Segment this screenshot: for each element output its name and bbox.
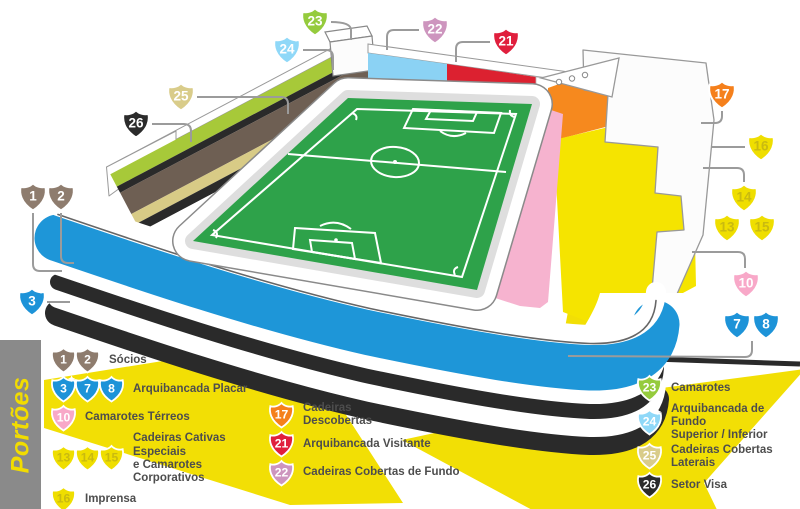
shield-icon: 8	[98, 375, 125, 404]
legend-label: Sócios	[109, 354, 147, 367]
gate-badge-2-legend[interactable]: 2	[74, 346, 101, 375]
legend-label: Arquibancada Visitante	[303, 438, 431, 451]
legend-label: Cadeiras Cobertas de Fundo	[303, 466, 460, 479]
legend-row: 22Cadeiras Cobertas de Fundo	[268, 459, 468, 488]
shield-icon: 3	[50, 375, 77, 404]
shield-icon: 16	[50, 485, 77, 509]
svg-text:2: 2	[84, 353, 91, 367]
legend-label: Cadeiras Descobertas	[303, 402, 372, 428]
legend-column-1: 12Sócios378Arquibancada Placar10Camarote…	[50, 346, 275, 509]
legend-row-badges: 131415	[50, 444, 125, 473]
gates-title: Portões	[6, 376, 35, 473]
legend-column-2: 17Cadeiras Descobertas21Arquibancada Vis…	[268, 401, 468, 487]
svg-text:24: 24	[279, 42, 295, 57]
shield-icon: 22	[268, 459, 295, 488]
gate-badge-13-legend[interactable]: 13	[50, 444, 77, 473]
shield-icon: 17	[707, 79, 737, 111]
shield-icon: 24	[272, 34, 302, 66]
shield-icon: 22	[420, 14, 450, 46]
legend-row-badges: 23	[636, 374, 663, 403]
svg-text:23: 23	[307, 14, 323, 29]
svg-text:15: 15	[754, 220, 770, 235]
gate-badge-16[interactable]: 16	[746, 131, 776, 163]
svg-text:2: 2	[57, 189, 65, 204]
legend-row-badges: 24	[636, 408, 663, 437]
legend-row: 10Camarotes Térreos	[50, 404, 275, 433]
gate-badge-21[interactable]: 21	[491, 26, 521, 58]
legend-label: Camarotes Térreos	[85, 411, 190, 424]
svg-text:26: 26	[643, 478, 657, 492]
gate-badge-1-legend[interactable]: 1	[50, 346, 77, 375]
shield-icon: 15	[747, 212, 777, 244]
gate-badge-26[interactable]: 26	[121, 108, 151, 140]
shield-icon: 15	[98, 444, 125, 473]
svg-text:10: 10	[738, 276, 753, 291]
svg-text:1: 1	[29, 189, 37, 204]
shield-icon: 1	[18, 181, 48, 213]
stadium-gates-map: 12378101314151617212223242526 Portões 12…	[0, 0, 800, 509]
legend-row: 23Camarotes	[636, 374, 800, 403]
svg-text:7: 7	[733, 317, 741, 332]
gate-badge-15-legend[interactable]: 15	[98, 444, 125, 473]
svg-text:13: 13	[57, 451, 71, 465]
gate-badge-1[interactable]: 1	[18, 181, 48, 213]
legend-row-badges: 22	[268, 459, 295, 488]
gate-badge-24-legend[interactable]: 24	[636, 408, 663, 437]
shield-icon: 7	[722, 309, 752, 341]
svg-text:25: 25	[173, 89, 189, 104]
shield-icon: 21	[268, 430, 295, 459]
svg-text:3: 3	[28, 294, 36, 309]
gate-badge-8-legend[interactable]: 8	[98, 375, 125, 404]
shield-icon: 14	[729, 182, 759, 214]
svg-text:22: 22	[275, 465, 289, 479]
svg-text:21: 21	[275, 436, 289, 450]
legend-row-badges: 16	[50, 485, 77, 509]
svg-text:3: 3	[60, 381, 67, 395]
shield-icon: 21	[491, 26, 521, 58]
shield-icon: 2	[74, 346, 101, 375]
shield-icon: 24	[636, 408, 663, 437]
legend-label: Arquibancada de Fundo Superior / Inferio…	[671, 403, 800, 443]
svg-text:8: 8	[762, 317, 770, 332]
shield-icon: 13	[50, 444, 77, 473]
legend-row-badges: 17	[268, 401, 295, 430]
legend-row: 12Sócios	[50, 346, 275, 375]
svg-text:13: 13	[719, 220, 735, 235]
legend-label: Cadeiras Cobertas Laterais	[671, 444, 773, 470]
svg-text:23: 23	[643, 381, 657, 395]
shield-icon: 14	[74, 444, 101, 473]
shield-icon: 2	[46, 181, 76, 213]
legend-label: Camarotes	[671, 382, 730, 395]
gate-badge-17-legend[interactable]: 17	[268, 401, 295, 430]
svg-text:10: 10	[57, 410, 71, 424]
gates-title-bar: Portões	[0, 340, 41, 509]
shield-icon: 16	[746, 131, 776, 163]
legend-label: Setor Visa	[671, 479, 727, 492]
svg-text:26: 26	[128, 116, 144, 131]
shield-icon: 23	[636, 374, 663, 403]
shield-icon: 26	[636, 471, 663, 500]
svg-text:17: 17	[714, 87, 729, 102]
gate-badge-23[interactable]: 23	[300, 6, 330, 38]
shield-icon: 1	[50, 346, 77, 375]
gate-badge-15[interactable]: 15	[747, 212, 777, 244]
shield-icon: 26	[121, 108, 151, 140]
svg-text:17: 17	[275, 408, 289, 422]
svg-text:8: 8	[108, 381, 115, 395]
gate-badge-10-legend[interactable]: 10	[50, 404, 77, 433]
gate-badge-3-legend[interactable]: 3	[50, 375, 77, 404]
shield-icon: 23	[300, 6, 330, 38]
svg-text:1: 1	[60, 353, 67, 367]
gate-badge-2[interactable]: 2	[46, 181, 76, 213]
gate-badge-7-legend[interactable]: 7	[74, 375, 101, 404]
legend-label: Arquibancada Placar	[133, 383, 247, 396]
gate-badge-24[interactable]: 24	[272, 34, 302, 66]
legend-row: 378Arquibancada Placar	[50, 375, 275, 404]
gate-badge-22-legend[interactable]: 22	[268, 459, 295, 488]
svg-text:24: 24	[643, 415, 657, 429]
shield-icon: 7	[74, 375, 101, 404]
svg-text:25: 25	[643, 449, 657, 463]
svg-text:16: 16	[57, 492, 71, 506]
legend-row: 26Setor Visa	[636, 471, 800, 500]
legend-row: 16Imprensa	[50, 485, 275, 509]
gate-badge-8[interactable]: 8	[751, 309, 781, 341]
gate-badge-14-legend[interactable]: 14	[74, 444, 101, 473]
legend-row-badges: 21	[268, 430, 295, 459]
legend-row-badges: 378	[50, 375, 125, 404]
legend-row-badges: 12	[50, 346, 101, 375]
gate-badge-23-legend[interactable]: 23	[636, 374, 663, 403]
shield-icon: 10	[731, 268, 761, 300]
legend-row-badges: 25	[636, 442, 663, 471]
shield-icon: 8	[751, 309, 781, 341]
gate-badge-16-legend[interactable]: 16	[50, 485, 77, 509]
legend-row-badges: 10	[50, 404, 77, 433]
shield-icon: 13	[712, 212, 742, 244]
svg-text:15: 15	[105, 451, 119, 465]
gate-badge-22[interactable]: 22	[420, 14, 450, 46]
gate-badge-13[interactable]: 13	[712, 212, 742, 244]
legend-row: 21Arquibancada Visitante	[268, 430, 468, 459]
gate-badge-10[interactable]: 10	[731, 268, 761, 300]
legend-label: Imprensa	[85, 493, 136, 506]
gate-badge-25[interactable]: 25	[166, 81, 196, 113]
shield-icon: 10	[50, 404, 77, 433]
legend-row-badges: 26	[636, 471, 663, 500]
shield-icon: 17	[268, 401, 295, 430]
shield-icon: 25	[166, 81, 196, 113]
svg-text:16: 16	[753, 139, 769, 154]
gate-badge-17[interactable]: 17	[707, 79, 737, 111]
gate-badge-21-legend[interactable]: 21	[268, 430, 295, 459]
legend-row: 25Cadeiras Cobertas Laterais	[636, 442, 800, 471]
svg-text:22: 22	[427, 22, 442, 37]
shield-icon: 25	[636, 442, 663, 471]
legend-column-3: 23Camarotes24Arquibancada de Fundo Super…	[636, 374, 800, 500]
gate-badge-7[interactable]: 7	[722, 309, 752, 341]
svg-text:7: 7	[84, 381, 91, 395]
gate-badge-14[interactable]: 14	[729, 182, 759, 214]
svg-text:14: 14	[736, 190, 752, 205]
legend-row: 17Cadeiras Descobertas	[268, 401, 468, 430]
legend-label: Cadeiras Cativas Especiais e Camarotes C…	[133, 432, 275, 485]
legend-row: 131415Cadeiras Cativas Especiais e Camar…	[50, 432, 275, 485]
shield-icon: 3	[17, 286, 47, 318]
gate-badge-3[interactable]: 3	[17, 286, 47, 318]
legend-row: 24Arquibancada de Fundo Superior / Infer…	[636, 403, 800, 443]
gate-badge-26-legend[interactable]: 26	[636, 471, 663, 500]
svg-text:21: 21	[498, 34, 514, 49]
gate-badge-25-legend[interactable]: 25	[636, 442, 663, 471]
svg-text:14: 14	[81, 451, 95, 465]
